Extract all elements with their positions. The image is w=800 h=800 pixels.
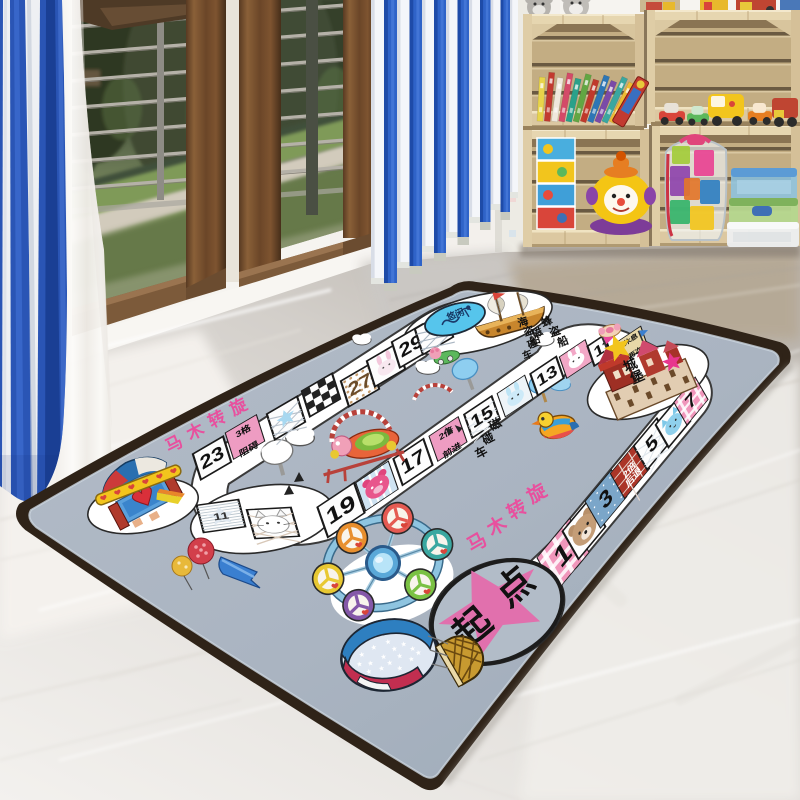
svg-text:11: 11: [212, 510, 230, 523]
